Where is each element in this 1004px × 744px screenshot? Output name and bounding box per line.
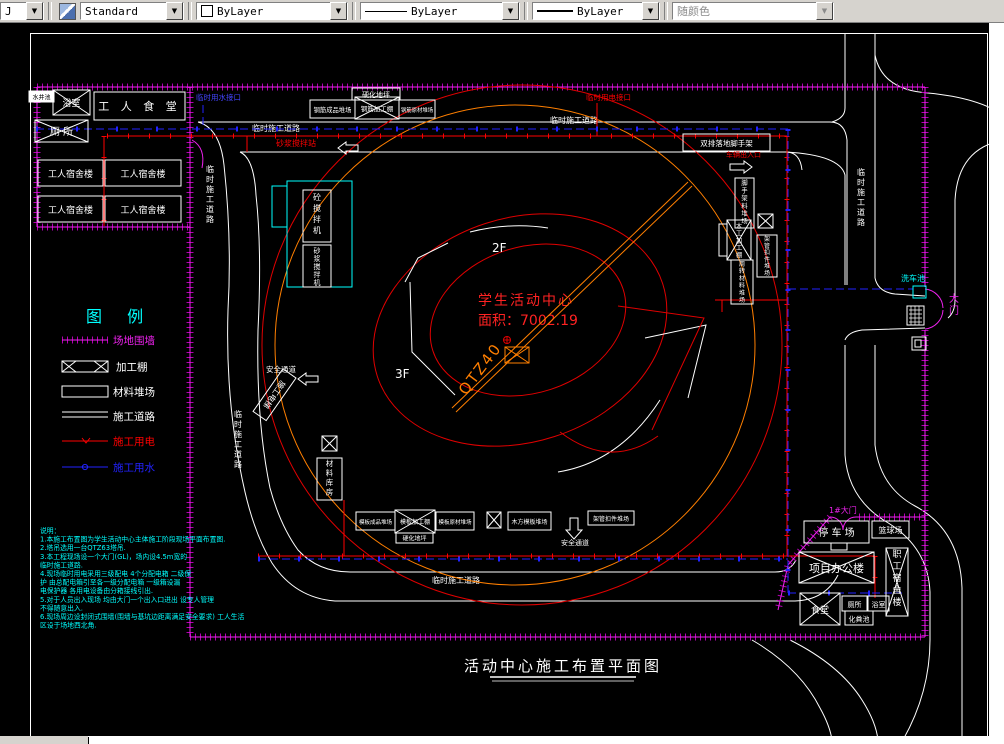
note-line: 1.本施工布置图为学生活动中心主体施工阶段现场平面布置图.	[40, 535, 225, 544]
linetype-combo[interactable]: ByLayer ▼	[360, 2, 520, 20]
note-line: 说明：	[40, 526, 60, 535]
note-line: 电保护器 各用电设备由分箱接线引出.	[40, 586, 153, 595]
toilet-label: 厕 所	[50, 126, 73, 138]
office-compound: 停 车 场 篮球场 项目办公楼 职工宿舍楼 食堂 厕所 浴室 化粪池	[799, 521, 909, 625]
linetype-glyph-icon	[365, 11, 407, 12]
carpentry-shed-label: 木工加工棚	[736, 221, 743, 259]
worker-dorm-label: 工人宿舍楼	[120, 168, 165, 180]
layer-combo-value: J	[1, 3, 26, 19]
text-style-combo[interactable]: Standard ▼	[80, 2, 184, 20]
text-style-manager-button[interactable]	[56, 1, 78, 21]
worker-dorm-label: 工人宿舍楼	[48, 168, 93, 180]
main-gate-label: 大门	[949, 292, 959, 317]
safety-passage-label: 安全通道	[561, 538, 589, 547]
distribution-box-icon	[758, 214, 773, 228]
water-tap-label: 临时用水接口	[196, 92, 241, 102]
scaffold-label: 双排落地脚手架	[700, 138, 753, 148]
timber-yard-label: 木方模板堆场	[511, 518, 547, 526]
legend-item-label: 加工棚	[116, 361, 148, 374]
note-line: 5.对于人员出入现场 均由大门一个出入口进出 设专人管理	[40, 595, 214, 604]
worker-dorm-label: 工人宿舍楼	[120, 204, 165, 216]
note-line: 4.现场临时用电采用三级配电 4个分配电箱 二级保	[40, 569, 191, 578]
east-yards: 双排落地脚手架 车辆出入口 脚手架料堆场 木工加工棚 架管扣件堆场 周转材料堆场	[683, 134, 777, 304]
chevron-down-icon[interactable]: ▼	[502, 2, 519, 20]
chevron-down-icon[interactable]: ▼	[166, 2, 183, 20]
building-area: 面积：7002.19	[478, 313, 578, 329]
style-tool-icon	[59, 3, 76, 20]
drawing-title: 活动中心施工布置平面图	[464, 657, 662, 681]
plotstyle-combo: 随颜色 ▼	[672, 2, 834, 20]
text-style-value: Standard	[81, 3, 166, 19]
south-yards: 模板成品堆场 模板加工棚 硬化地坪 模板原材堆场 木方模板堆场 安全通道 架管扣…	[356, 510, 634, 547]
cad-application-window: { "toolbar": { "layer_combo_partial": "J…	[0, 0, 1004, 744]
workers-canteen-label: 工 人 食 堂	[98, 99, 181, 113]
legend-item-label: 材料堆场	[113, 386, 155, 399]
properties-toolbar: J ▼ Standard ▼ ByLayer ▼ ByLayer ▼ ByLay…	[0, 0, 1004, 23]
formwork-finished-yard-label: 模板成品堆场	[359, 518, 393, 526]
toolbar-separator	[664, 2, 668, 20]
notes-block: 说明： 1.本施工布置图为学生活动中心主体施工阶段现场平面布置图. 2.塔吊选用…	[40, 526, 244, 630]
toolbar-separator	[524, 2, 528, 20]
toolbar-separator	[48, 2, 52, 20]
plotstyle-combo-value: 随颜色	[673, 3, 816, 19]
mortar-station-label: 砂浆搅拌站	[276, 138, 316, 148]
wash-pool-area: 洗车池	[901, 273, 926, 350]
mortar-mixer-label: 砂浆搅拌机	[314, 246, 321, 287]
color-combo-value: ByLayer	[197, 3, 330, 19]
main-gate-symbol	[925, 289, 943, 329]
grate-icon	[909, 306, 922, 325]
worker-camp: 水井池 浴室 工 人 食 堂 厕 所 工人宿舍楼 工人宿舍楼 工人宿舍楼 工人宿…	[29, 90, 185, 222]
guard-booth	[831, 543, 847, 550]
worker-dorm-label: 工人宿舍楼	[48, 204, 93, 216]
rebar-raw-yard-label: 钢筋原材堆场	[401, 106, 434, 114]
distribution-box-icon	[487, 512, 501, 528]
hardened-ground-label: 硬化地坪	[362, 90, 390, 99]
gate1-label: 1#大门	[829, 505, 857, 515]
canteen-label: 食堂	[811, 604, 829, 616]
chevron-down-icon: ▼	[816, 2, 833, 20]
turnover-mat-yard-label: 周转材料堆场	[739, 261, 745, 304]
septic-tank-label: 化粪池	[849, 615, 870, 624]
statusbar-stub	[0, 736, 88, 744]
chevron-down-icon[interactable]: ▼	[330, 2, 347, 20]
tower-crane-radius	[262, 85, 782, 605]
formwork-raw-yard-label: 模板原材堆场	[438, 518, 472, 526]
staff-dorm-label: 职工宿舍楼	[892, 549, 901, 608]
lineweight-glyph-icon	[537, 10, 573, 12]
formwork-shed-label: 模板加工棚	[400, 518, 430, 526]
well-label: 水井池	[32, 94, 50, 102]
floor-label-3f: 3F	[395, 367, 410, 381]
legend-title: 图 例	[86, 307, 153, 326]
page-title: 活动中心施工布置平面图	[464, 657, 662, 675]
color-combo[interactable]: ByLayer ▼	[196, 2, 348, 20]
scaffold-mat-yard-label: 脚手架料堆场	[741, 178, 748, 225]
rebar-processing-area: 硬化地坪 钢筋成品堆场 钢筋加工棚 钢筋原材堆场 砂浆搅拌站	[276, 88, 435, 154]
lineweight-combo-value: ByLayer	[533, 3, 642, 19]
linetype-combo-value: ByLayer	[361, 3, 502, 19]
note-line: 3.本工程现场设一个大门(GL)，场内设4.5m宽的	[40, 552, 187, 561]
left-arrow-icon	[298, 373, 318, 385]
chevron-down-icon[interactable]: ▼	[26, 2, 43, 20]
note-line: 护 由总配电箱引至各一级分配电箱 一级箱设漏	[40, 578, 180, 587]
building-outline: 学生活动中心 面积：7002.19 2F 3F	[343, 177, 706, 483]
legend-item-label: 施工用水	[113, 461, 155, 474]
floor-label-2f: 2F	[492, 241, 507, 255]
office-label: 项目办公楼	[809, 561, 864, 575]
building-name: 学生活动中心	[478, 293, 574, 309]
road-labels: 临时施工道路 临时施工道路 临时施工道路 临时施工道路 临时施工道路 临时施工道…	[206, 115, 865, 585]
power-tap-label: 临时用电接口	[586, 92, 631, 102]
toolbar-separator	[188, 2, 192, 20]
road-label-vertical: 临时施工道路	[206, 164, 214, 224]
rebar-shed-label: 钢筋加工棚	[361, 104, 394, 113]
hardened-ground-label: 硬化地坪	[402, 535, 426, 543]
road-label: 临时施工道路	[432, 575, 480, 585]
legend-item-label: 场地围墙	[113, 334, 155, 347]
note-line: 不得随意出入.	[40, 603, 83, 612]
bath2-label: 浴室	[872, 600, 886, 609]
mixing-station: 砼搅拌机 砂浆搅拌机	[272, 181, 352, 287]
coupler-yard-label: 架管扣件堆场	[764, 235, 770, 277]
toolbar-separator	[352, 2, 356, 20]
note-line: 2.塔吊选用一台QTZ63塔吊.	[40, 543, 126, 552]
rebar-finished-yard-label: 钢筋成品堆场	[314, 105, 352, 114]
color-swatch-icon	[201, 5, 213, 17]
down-arrow-icon	[566, 518, 582, 539]
legend-item-label: 施工用电	[113, 435, 155, 448]
right-arrow-icon	[730, 161, 752, 173]
vehicle-gate-label: 车辆出入口	[726, 150, 761, 159]
note-line: 区设于场地西北角.	[40, 621, 97, 630]
crane-model-label: QTZ40	[455, 339, 506, 398]
basketball-label: 篮球场	[879, 525, 903, 535]
bath-label: 浴室	[62, 97, 80, 109]
note-line: 6.现场周边设封闭式围墙(围墙与基坑边距离满足安全要求) 工人生活	[40, 612, 244, 621]
road-label-vertical: 临时施工道路	[857, 167, 865, 227]
site-plan-drawing[interactable]: 临时施工道路 临时施工道路 临时施工道路 临时施工道路 临时施工道路 临时施工道…	[0, 0, 1004, 744]
layer-combo-partial[interactable]: J ▼	[0, 2, 44, 20]
note-line: 临时施工道路.	[40, 560, 83, 569]
legend-item-label: 施工道路	[113, 410, 155, 423]
west-items: 安全通道 施工电梯 材料库房	[253, 364, 342, 500]
coupler-yard-label: 架管扣件堆场	[593, 515, 629, 523]
legend: 图 例 场地围墙 加工棚 材料堆场 施工道路 施工用电 施工用水	[62, 307, 155, 474]
horizontal-scrollbar[interactable]	[89, 736, 989, 744]
wash-pool-label: 洗车池	[901, 273, 925, 283]
lineweight-combo[interactable]: ByLayer ▼	[532, 2, 660, 20]
road-label: 临时施工道路	[550, 115, 598, 125]
toilet2-label: 厕所	[848, 600, 862, 609]
vertical-scrollbar[interactable]	[989, 23, 1004, 744]
material-store-label: 材料库房	[326, 458, 334, 497]
chevron-down-icon[interactable]: ▼	[642, 2, 659, 20]
parking-label: 停 车 场	[818, 526, 854, 539]
distribution-box-icon	[322, 436, 337, 451]
safety-passage-label: 安全通道	[266, 364, 296, 374]
